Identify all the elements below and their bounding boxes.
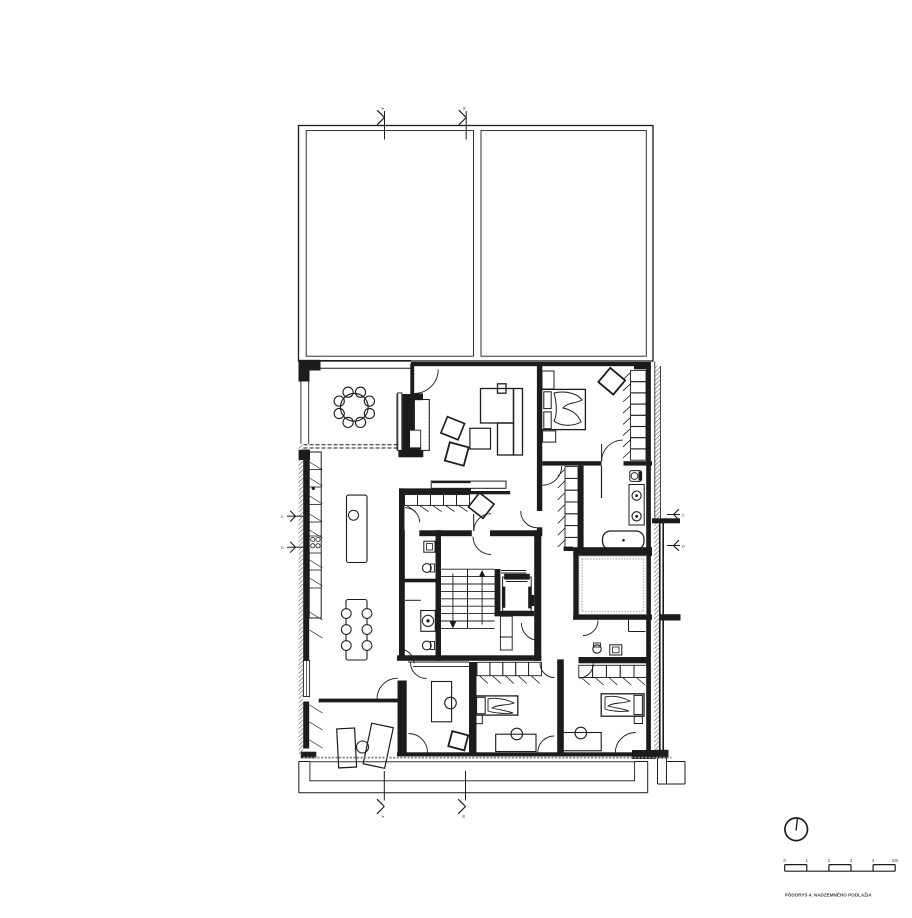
svg-text:PÔDORYS 4. NADZEMNÉHO PODLAŽIA: PÔDORYS 4. NADZEMNÉHO PODLAŽIA [785, 891, 873, 898]
svg-text:C: C [682, 514, 685, 518]
svg-text:D: D [682, 545, 685, 549]
svg-text:C: C [281, 515, 284, 519]
svg-text:D: D [281, 546, 284, 550]
svg-text:5m: 5m [892, 858, 898, 863]
